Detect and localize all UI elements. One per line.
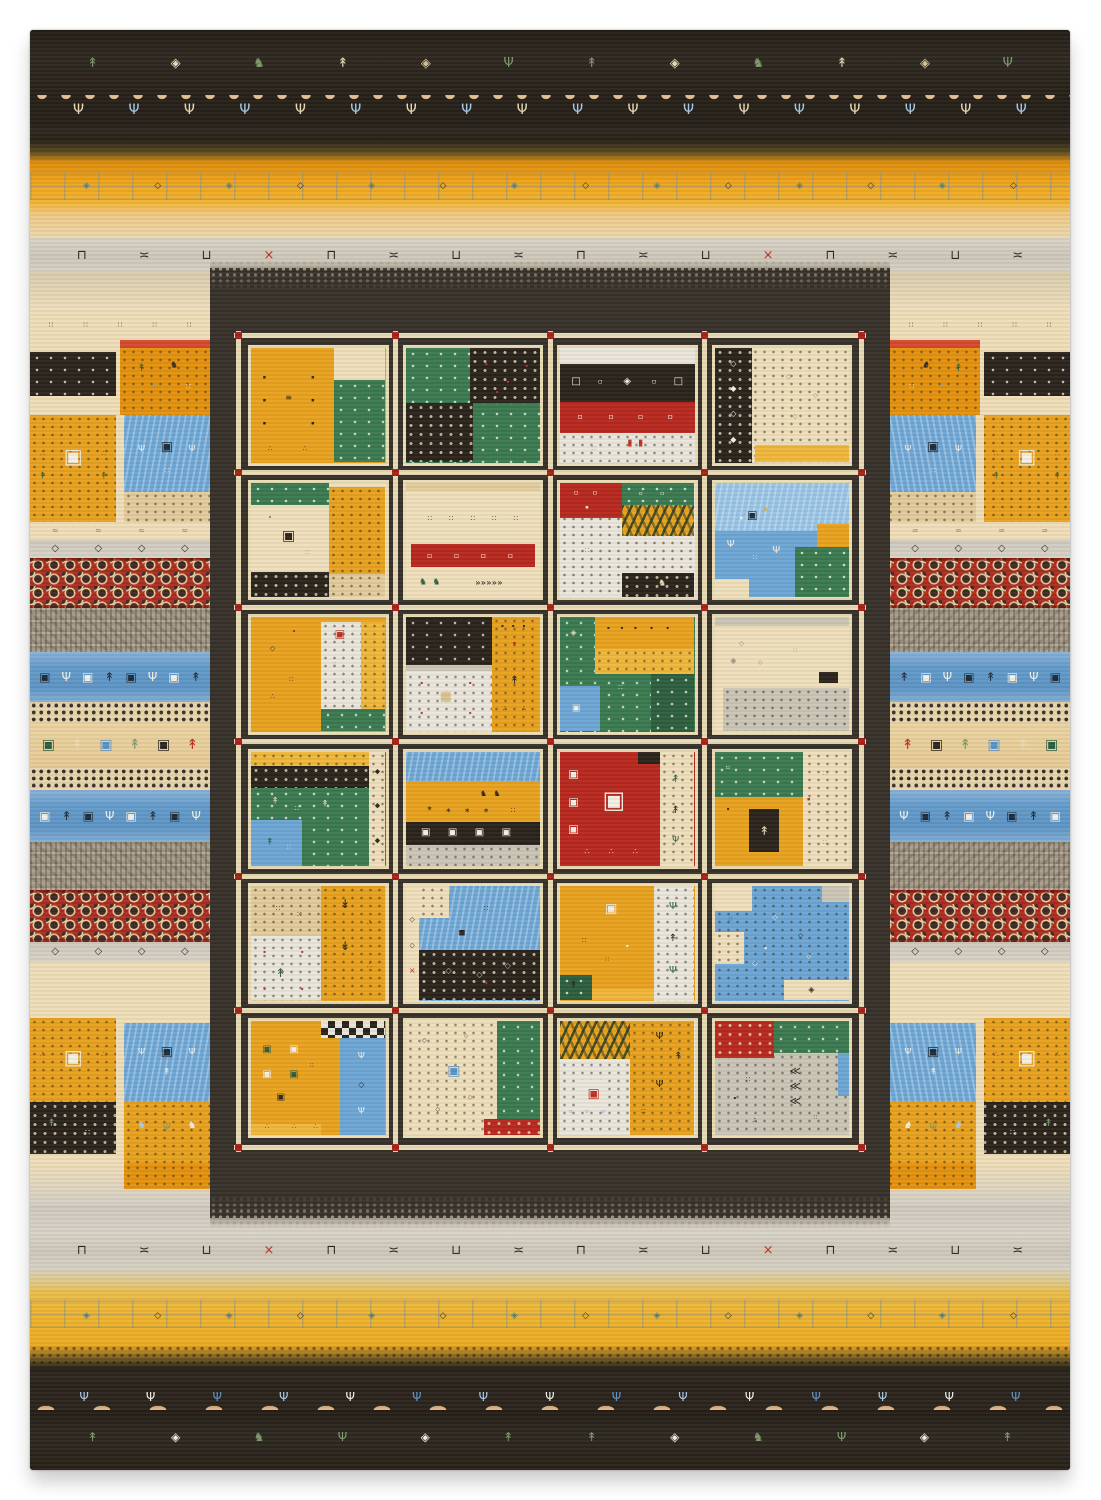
patch-yellow-blue-motif-glyph: Ψ <box>138 446 145 455</box>
grid-cell-r1c1-motif-glyph: ▪ <box>263 375 266 380</box>
patchwork-grid: ▪▪▪▪▪▪≡∴∴▪▪▪▪□▫◈▫□▫▫▫▫▮▮∷◇◆◇◆◇◇◇▣∷▪∷∷∷∷∷… <box>248 345 852 1138</box>
lattice-knot-dot <box>858 873 865 880</box>
grid-cell-r3c1-motif-glyph: ∷ <box>289 676 293 683</box>
bottom-gray-motif-band-motif-glyph: ⊔ <box>202 1244 212 1257</box>
grid-cell-r6c2-patch <box>484 1119 540 1135</box>
grid-cell-r2c4-patch <box>715 579 750 597</box>
patch-yellow-blue-patch <box>890 492 976 522</box>
lattice-knot-dot <box>858 604 865 611</box>
grid-cell-r4c2-motif-glyph: ∗ <box>427 805 433 812</box>
grid-cell-r2c2-motif-glyph: ▫ <box>454 552 459 560</box>
grid-cell-r5c3-motif-glyph: ↟ <box>669 934 677 944</box>
top-outer-border-motif-glyph: ◈ <box>421 57 431 70</box>
patch-yellow-blue-lower: ▣∴∴▣ΨΨ↟ <box>890 1018 1070 1102</box>
photo-canvas: ↟◈♞↟◈Ψ↟◈♞↟◈ΨΨΨΨΨΨΨΨΨΨΨΨΨΨΨΨΨΨΨ◈◇◈◇◈◇◈◇◈◇… <box>0 0 1101 1500</box>
gray-motif-band-motif-glyph: ≍ <box>1012 249 1023 262</box>
bottom-outer-border-motif-glyph: ↟ <box>1002 1431 1012 1443</box>
diamond-row: ◇◇◇◇ <box>890 540 1070 558</box>
grid-cell-r2c3-motif-glyph: ▫ <box>639 491 643 497</box>
top-scale-band-motif-row: ΨΨΨΨΨΨΨΨΨΨΨΨΨΨΨΨΨΨ <box>51 99 1049 121</box>
grid-cell-r4c1-motif-glyph: ↟ <box>321 801 329 810</box>
grid-cell-r5c4-patch <box>822 886 849 902</box>
grid-cell-r4c2-motif-glyph: ∗ <box>483 808 489 815</box>
grid-cell-r3c2-motif-glyph: ▪ <box>523 624 526 628</box>
patch-yellow-blue-lower-motif-glyph: Ψ <box>188 1049 195 1058</box>
top-scale-band-motif-glyph: Ψ <box>1016 103 1027 117</box>
grid-cell-r6c1-patch <box>251 1124 321 1135</box>
grain-band <box>30 842 210 890</box>
blue-square-band-motif-glyph: Ψ <box>62 671 71 683</box>
grid-cell-r1c1: ▪▪▪▪▪▪≡∴∴ <box>248 345 389 466</box>
patch-yellow-blue-patch <box>124 492 210 522</box>
lattice-knot-dot <box>235 1007 242 1014</box>
bottom-gray-motif-band-motif-row: ⊓≍⊔×⊓≍⊔≍⊓≍⊔×⊓≍⊔≍ <box>51 1232 1049 1268</box>
lattice-knot-dot <box>235 604 242 611</box>
cream-gap-motif-glyph: ≈ <box>1041 527 1048 535</box>
blue-square-band-motif-glyph: Ψ <box>191 810 200 822</box>
diamond-row-motif-glyph: ◇ <box>998 947 1006 957</box>
grid-cell-r3c1-motif-glyph: ∷ <box>346 680 350 686</box>
grid-cell-r1c1-motif-glyph: ≡ <box>285 394 292 402</box>
grid-cell-r2c1-motif-glyph: ▪ <box>268 515 271 519</box>
patch-charcoal-yellow-motif-glyph: ♞ <box>954 1121 963 1131</box>
top-scale-band-motif-glyph: Ψ <box>350 103 361 117</box>
diamond-row-motif-glyph: ◇ <box>911 947 919 957</box>
blue-square-band-motif-glyph: ↟ <box>62 810 72 822</box>
patch-yellow-blue-lower-motif-glyph: ∴ <box>994 1051 999 1059</box>
grid-cell-r6c3-motif-glyph: ∴ <box>676 1108 681 1116</box>
top-outer-border: ↟◈♞↟◈Ψ↟◈♞↟◈Ψ <box>30 30 1070 95</box>
margin-fade-patch <box>124 1164 210 1189</box>
blue-square-band: ▣Ψ▣↟▣Ψ▣↟ <box>30 652 210 702</box>
grid-cell-r3c2-motif-glyph: ▪ <box>513 642 516 647</box>
diamond-row-motif-glyph: ◇ <box>911 544 919 554</box>
top-scale-band-motif-glyph: Ψ <box>461 103 472 117</box>
patch-stars-orange-motif-glyph: ∷ <box>909 383 914 391</box>
grid-cell-r6c1-motif-glyph: ∷ <box>310 1063 314 1069</box>
grid-cell-r6c1-patch <box>321 1021 386 1038</box>
patch-charcoal-yellow: ↟∷♞Ψ♞ <box>890 1102 1070 1164</box>
grid-cell-r6c1-motif-glyph: ▣ <box>289 1070 298 1080</box>
square-motif-row-motif-row: ▣↟▣↟▣↟ <box>894 722 1067 768</box>
grid-cell-r5c1-motif-glyph: ↡ <box>340 898 350 910</box>
gabbeh-patchwork-rug: ↟◈♞↟◈Ψ↟◈♞↟◈ΨΨΨΨΨΨΨΨΨΨΨΨΨΨΨΨΨΨΨ◈◇◈◇◈◇◈◇◈◇… <box>30 30 1070 1470</box>
grid-cell-r6c4-motif-glyph: ∷ <box>746 1077 750 1084</box>
blue-square-band-motif-glyph: ↟ <box>104 671 114 683</box>
fade-cream-yellow <box>30 1268 1070 1290</box>
cream-dot-row-motif-row: ∷∷∷∷∷ <box>34 310 207 340</box>
grid-cell-r3c2-motif-glyph: ■ <box>440 691 452 704</box>
blue-square-band-motif-glyph: ▣ <box>82 671 93 683</box>
grid-cell-r5c3: ▣∷▪∷↟Ψ↟Ψ <box>557 883 698 1004</box>
grid-cell-r1c3-motif-glyph: ▫ <box>638 413 643 421</box>
lattice-knot-dot <box>701 873 708 880</box>
flower-band-motif-glyph: Ψ <box>79 1391 88 1403</box>
lattice-knot-dot <box>858 738 865 745</box>
yellow-garden-band-motif-glyph: ◈ <box>511 1312 518 1321</box>
grid-cell-r5c4: ◇◇▪◇◇◈∷ <box>712 883 853 1004</box>
grid-cell-r4c2-patch <box>406 752 541 782</box>
bottom-gray-motif-band-motif-glyph: ≍ <box>513 1244 524 1257</box>
grid-cell-r4c4-motif-glyph: ∷ <box>825 811 829 818</box>
patch-yellow-blue-lower-patch <box>890 1023 976 1102</box>
yellow-garden-band-motif-glyph: ◈ <box>653 1312 660 1321</box>
grid-cell-r2c3-motif-glyph: ▪ <box>585 505 588 510</box>
grid-cell-r5c1-motif-glyph: ∴ <box>367 919 372 927</box>
diamond-row-motif-row: ◇◇◇◇ <box>894 942 1067 962</box>
cream-dot-row-motif-glyph: ∷ <box>1012 322 1016 329</box>
grid-cell-r3c4-motif-glyph: ◈ <box>730 657 736 665</box>
grid-cell-r3c4-patch <box>723 688 849 732</box>
diamond-row-motif-glyph: ◇ <box>1041 544 1049 554</box>
grid-cell-r6c1-motif-glyph: Ψ <box>358 1108 365 1117</box>
grid-cell-r6c3: ▣▫▫▫Ψ↟Ψ∴∷ <box>557 1018 698 1139</box>
grid-cell-r5c2-motif-glyph: ◇ <box>410 917 415 924</box>
grid-cell-r4c2-motif-glyph: ▣ <box>475 828 484 838</box>
patch-stars-orange-patch <box>30 352 116 396</box>
grid-cell-r3c2-motif-glyph: ▪ <box>512 624 515 628</box>
cream-dot-row: ∷∷∷∷∷ <box>30 310 210 340</box>
grid-cell-r5c4-motif-glyph: ∷ <box>729 917 733 923</box>
square-motif-row-motif-glyph: ▣ <box>930 738 943 752</box>
grid-cell-r4c2-motif-glyph: ▣ <box>421 828 430 838</box>
cream-dot-row-motif-row: ∷∷∷∷∷ <box>894 310 1067 340</box>
orange-garden-band-motif-glyph: ◈ <box>511 182 518 191</box>
top-scale-band-motif-glyph: Ψ <box>628 103 639 117</box>
margin-fade <box>30 1164 210 1205</box>
patch-stars-orange-patch <box>120 348 210 416</box>
yellow-garden-band-motif-glyph: ◇ <box>725 1312 732 1321</box>
grid-cell-r1c3-motif-glyph: ▫ <box>608 413 613 421</box>
flower-band-motif-glyph: Ψ <box>412 1391 421 1403</box>
patch-yellow-blue-motif-glyph: ▣ <box>161 441 173 454</box>
grid-cell-r1c4: ◇◆◇◆◇◇◇ <box>712 345 853 466</box>
patch-stars-orange-patch <box>890 348 980 416</box>
grid-cell-r3c3-motif-glyph: ▪ <box>634 626 637 630</box>
grain-band <box>890 842 1070 890</box>
patch-yellow-blue-motif-glyph: Ψ <box>188 446 195 455</box>
grid-cell-r5c3-motif-glyph: Ψ <box>669 902 677 912</box>
grid-cell-r1c2-patch <box>406 403 473 463</box>
grid-cell-r1c1-motif-glyph: ∴ <box>268 445 272 452</box>
grid-cell-r3c4-patch <box>715 617 850 626</box>
grid-cell-r5c4-motif-glyph: ◇ <box>798 933 803 940</box>
grid-cell-r3c4-motif-glyph: ◇ <box>739 641 744 648</box>
flower-band-motif-glyph: Ψ <box>279 1391 288 1403</box>
grid-cell-r1c1-motif-glyph: ▪ <box>311 421 314 426</box>
yellow-garden-band: ◈◇◈◇◈◇◈◇◈◇◈◇◈◇ <box>30 1290 1070 1345</box>
bottom-gray-motif-band: ⊓≍⊔×⊓≍⊔≍⊓≍⊔×⊓≍⊔≍ <box>30 1232 1070 1268</box>
lattice-knot-dot <box>701 1007 708 1014</box>
grid-cell-r2c4-motif-glyph: ∷ <box>753 555 757 562</box>
bottom-outer-border-motif-glyph: ↟ <box>87 1431 97 1443</box>
cream-gap-motif-glyph: ≈ <box>95 527 102 535</box>
top-scale-band-motif-glyph: Ψ <box>239 103 250 117</box>
grid-cell-r6c4: ≪≪≪∷▪∴∷ <box>712 1018 853 1139</box>
grid-cell-r3c2-patch <box>406 665 492 671</box>
orange-garden-band-motif-glyph: ◇ <box>582 182 589 191</box>
cream-gap-motif-row: ≈≈≈≈ <box>894 522 1067 540</box>
grid-cell-r4c4-motif-glyph: ▪ <box>727 807 730 811</box>
top-scale-band-motif-glyph: Ψ <box>960 103 971 117</box>
margin-fade <box>890 1164 1070 1205</box>
grid-cell-r5c1-motif-glyph: ▪ <box>263 950 266 954</box>
patch-charcoal-yellow-motif-glyph: ♞ <box>904 1121 913 1131</box>
grid-cell-r4c2-motif-glyph: ▣ <box>502 828 511 838</box>
top-outer-border-motif-glyph: ↟ <box>337 57 348 70</box>
bottom-gray-motif-band-motif-glyph: ⊓ <box>825 1244 835 1257</box>
grid-cell-r4c4-motif-glyph: ∷ <box>823 771 827 778</box>
patch-yellow-blue-lower-motif-glyph: ↟ <box>163 1069 171 1078</box>
lattice-knot-dot <box>547 1144 554 1151</box>
cream-gap-motif-glyph: ≈ <box>955 527 962 535</box>
diamond-row-motif-glyph: ◇ <box>95 947 103 957</box>
grid-cell-r2c2-motif-glyph: ▫ <box>427 552 432 560</box>
square-motif-row-motif-glyph: ↟ <box>129 738 141 752</box>
grid-cell-r4c2-motif-glyph: ∗ <box>446 808 452 815</box>
grid-cell-r6c3-motif-glyph: Ψ <box>656 1080 664 1090</box>
cream-gap-motif-glyph: ≈ <box>998 527 1005 535</box>
grid-cell-r6c1-motif-glyph: ∴ <box>313 1123 317 1130</box>
grid-cell-r2c4: ▣▪▪ΨΨ∷ <box>712 480 853 601</box>
cream-plain <box>30 962 210 1018</box>
blue-square-band-motif-glyph: ▣ <box>1007 671 1018 683</box>
grid-cell-r6c2-motif-glyph: ◇ <box>464 1034 468 1039</box>
patch-charcoal-yellow-patch <box>30 1102 116 1154</box>
grid-cell-r4c3-motif-glyph: Ψ <box>672 836 679 845</box>
cream-dot-row-motif-glyph: ∷ <box>83 322 87 329</box>
cream-gap-motif-row: ≈≈≈≈ <box>34 522 207 540</box>
grid-cell-r6c1-motif-glyph: ▣ <box>262 1070 271 1080</box>
grid-cell-r6c4-motif-glyph: ∴ <box>752 1117 757 1125</box>
grid-cell-r2c3-patch <box>622 505 695 536</box>
grid-cell-r6c3-motif-glyph: ▫ <box>569 1110 572 1115</box>
patch-yellow-blue-lower-motif-glyph: Ψ <box>904 1049 911 1058</box>
blue-square-band-motif-glyph: ▣ <box>1050 810 1061 822</box>
grid-cell-r2c3-motif-glyph: ∷ <box>585 548 589 555</box>
lattice-knot-dot <box>547 604 554 611</box>
grid-cell-r2c4-patch <box>795 547 849 597</box>
lattice-knot-dot <box>858 469 865 476</box>
patch-yellow-blue-patch <box>30 415 116 522</box>
patch-yellow-blue-motif-glyph: ↟ <box>100 473 108 482</box>
grid-cell-r1c2-motif-glyph: ▪ <box>485 362 488 366</box>
patch-charcoal-yellow-motif-glyph: ♞ <box>188 1121 197 1131</box>
grid-cell-r1c2: ▪▪▪▪ <box>403 345 544 466</box>
cream-dot-row-motif-glyph: ∷ <box>187 322 191 329</box>
grid-cell-r3c3-motif-glyph: ▪ <box>666 626 669 630</box>
blue-square-band: ▣Ψ▣↟▣Ψ▣↟ <box>890 652 1070 702</box>
orange-garden-band-motif-glyph: ◇ <box>297 182 304 191</box>
grid-cell-r1c2-patch <box>470 348 540 403</box>
cream-dot-row-motif-glyph: ∷ <box>978 322 982 329</box>
top-scale-band-motif-glyph: Ψ <box>572 103 583 117</box>
yellow-garden-band-motif-glyph: ◈ <box>83 1312 90 1321</box>
grid-cell-r2c4-motif-glyph: ▣ <box>747 509 757 520</box>
top-scale-band-motif-glyph: Ψ <box>794 103 805 117</box>
lattice-knot-dot <box>547 873 554 880</box>
grid-cell-r4c4-motif-glyph: ▫ <box>726 765 730 771</box>
bottom-gray-motif-band-motif-glyph: ⊓ <box>576 1244 586 1257</box>
top-outer-border-motif-glyph: ↟ <box>586 57 597 70</box>
diamond-row-motif-row: ◇◇◇◇ <box>894 540 1067 558</box>
honeycomb-band <box>890 890 1070 942</box>
grid-cell-r4c1-patch <box>251 820 302 866</box>
grid-cell-r3c2: ■▪▪▪▪▪▪▪▪↟∴∴ <box>403 614 544 735</box>
yellow-garden-band-motif-glyph: ◈ <box>226 1312 233 1321</box>
square-motif-row-motif-glyph: ▣ <box>157 738 170 752</box>
cream-gap-motif-glyph: ≈ <box>912 527 919 535</box>
flower-band-motif-glyph: Ψ <box>479 1391 488 1403</box>
grid-cell-r3c2-motif-glyph: ∴ <box>503 705 507 712</box>
grid-cell-r2c2-motif-glyph: ♞ <box>432 579 440 588</box>
grid-cell-r2c2-motif-glyph: ∷ <box>449 516 453 523</box>
blue-square-band-motif-glyph: ▣ <box>126 671 137 683</box>
top-charcoal <box>30 123 1070 140</box>
bottom-gray-motif-band-motif-glyph: ≍ <box>139 1244 150 1257</box>
patch-yellow-blue-lower-motif-glyph: ▣ <box>1017 1047 1036 1067</box>
grid-cell-r6c3-motif-glyph: ▫ <box>585 1110 588 1115</box>
grid-cell-r1c2-motif-glyph: ▪ <box>496 390 499 394</box>
grid-cell-r4c2: ▣▣▣▣♞♞∗∗∗∗∷ <box>403 749 544 870</box>
bottom-outer-border-motif-glyph: ◈ <box>920 1431 929 1443</box>
diamond-row-motif-glyph: ◇ <box>181 544 189 554</box>
patch-charcoal-yellow-motif-glyph: ♞ <box>137 1121 146 1131</box>
bottom-gray-motif-band-motif-glyph: ⊔ <box>451 1244 461 1257</box>
margin-fade-patch <box>890 1164 976 1189</box>
grid-cell-r1c4-motif-glyph: ◇ <box>793 414 798 420</box>
blue-square-band-motif-glyph: ↟ <box>148 810 158 822</box>
grid-cell-r3c1-patch <box>361 622 385 709</box>
diamond-row-motif-glyph: ◇ <box>1041 947 1049 957</box>
grid-cell-r4c1-motif-glyph: ◆ <box>375 769 380 776</box>
grid-cell-r3c2-motif-glyph: ▪ <box>469 711 472 715</box>
grid-cell-r1c3-motif-glyph: ▫ <box>652 379 657 386</box>
square-motif-row-motif-glyph: ↟ <box>186 738 198 752</box>
side-border-left: ∷∷∷∷∷↟♞∷∷▣∴∴↟↟▣ΨΨ∷≈≈≈≈◇◇◇◇▣Ψ▣↟▣Ψ▣↟▣↟▣↟▣↟… <box>30 310 210 1205</box>
orange-garden-band-motif-glyph: ◇ <box>725 182 732 191</box>
blue-square-band-motif-glyph: ▣ <box>168 671 179 683</box>
grid-cell-r6c3-motif-glyph: ∷ <box>641 1109 645 1116</box>
orange-garden-band-motif-glyph: ◇ <box>154 182 161 191</box>
grid-cell-r5c3-motif-glyph: ∷ <box>605 957 609 963</box>
blue-square-band-motif-row: ▣Ψ▣↟▣Ψ▣↟ <box>894 652 1067 702</box>
grid-cell-r5c4-patch <box>715 886 753 911</box>
grid-cell-r6c4-patch <box>774 1021 849 1053</box>
flower-band-motif-glyph: Ψ <box>878 1391 887 1403</box>
grid-cell-r4c1: ◆◆◆↟↟∷↟∷ <box>248 749 389 870</box>
flower-band-motif-glyph: Ψ <box>545 1391 554 1403</box>
flower-band-motif-glyph: Ψ <box>811 1391 820 1403</box>
bottom-outer-border-motif-glyph: Ψ <box>837 1431 846 1443</box>
diamond-row: ◇◇◇◇ <box>30 942 210 962</box>
grain-band <box>30 608 210 652</box>
lattice-knot-dot <box>392 873 399 880</box>
blue-square-band-motif-glyph: ▣ <box>39 671 50 683</box>
grid-cell-r2c3-motif-glyph: ▫ <box>574 489 579 496</box>
grid-cell-r3c2-motif-glyph: ▪ <box>420 681 423 685</box>
flower-band-motif-glyph: Ψ <box>678 1391 687 1403</box>
orange-garden-band: ◈◇◈◇◈◇◈◇◈◇◈◇◈◇ <box>30 162 1070 214</box>
grid-cell-r1c3-motif-glyph: □ <box>571 377 580 387</box>
grid-cell-r6c2-motif-glyph: ◇ <box>468 1095 473 1101</box>
flower-band-motif-glyph: Ψ <box>346 1391 355 1403</box>
dot-band <box>890 702 1070 722</box>
blue-square-band-motif-glyph: Ψ <box>986 810 995 822</box>
orange-garden-band-motif-glyph: ◈ <box>226 182 233 191</box>
grid-cell-r6c3-motif-glyph: Ψ <box>656 1032 664 1042</box>
square-motif-row-motif-glyph: ▣ <box>42 738 55 752</box>
top-scale-band-motif-glyph: Ψ <box>849 103 860 117</box>
yellow-garden-band-motif-row: ◈◇◈◇◈◇◈◇◈◇◈◇◈◇ <box>51 1304 1049 1328</box>
top-outer-border-motif-glyph: ↟ <box>837 57 848 70</box>
flower-band-motif-glyph: Ψ <box>212 1391 221 1403</box>
diamond-row-motif-glyph: ◇ <box>955 947 963 957</box>
grid-cell-r5c1-patch <box>321 886 386 1001</box>
grid-cell-r2c2: ∷∷∷∷∷▫▫▫▫♞♞»»»»» <box>403 480 544 601</box>
top-outer-border-motif-glyph: ♞ <box>253 57 265 70</box>
top-outer-border-motif-glyph: Ψ <box>503 57 513 70</box>
patch-yellow-blue-lower-motif-glyph: Ψ <box>138 1049 145 1058</box>
patch-yellow-blue: ▣∴∴↟↟▣ΨΨ∷ <box>30 415 210 522</box>
patch-charcoal-yellow-motif-glyph: ∷ <box>1010 1129 1015 1137</box>
blue-square-band-motif-glyph: ▣ <box>963 810 974 822</box>
diamond-row: ◇◇◇◇ <box>890 942 1070 962</box>
dot-band <box>30 702 210 722</box>
blue-square-band-motif-glyph: Ψ <box>899 810 908 822</box>
grid-cell-r4c3-patch <box>638 752 660 765</box>
diamond-row-motif-glyph: ◇ <box>95 544 103 554</box>
top-outer-border-motif-glyph: Ψ <box>1003 57 1013 70</box>
patch-yellow-blue-motif-glyph: ▣ <box>1017 446 1036 466</box>
square-motif-row-motif-glyph: ▣ <box>1045 738 1058 752</box>
grid-cell-r5c1-motif-glyph: ∴ <box>367 962 372 970</box>
grid-cell-r5c1-motif-glyph: ↟ <box>276 967 286 979</box>
top-scale-band-motif-glyph: Ψ <box>295 103 306 117</box>
grid-cell-r3c3-motif-glyph: ▪ <box>621 626 624 630</box>
grid-cell-r2c3-patch <box>622 483 695 506</box>
lattice-knot-dot <box>547 332 554 339</box>
grid-cell-r4c2-motif-glyph: ∷ <box>511 808 515 815</box>
blue-square-band-motif-glyph: Ψ <box>105 810 114 822</box>
grid-cell-r1c4-motif-glyph: ◇ <box>786 373 791 380</box>
square-motif-row: ▣↟▣↟▣↟ <box>890 722 1070 768</box>
bottom-gray-motif-band-motif-glyph: ≍ <box>1012 1244 1023 1257</box>
grid-cell-r5c4-motif-glyph: ◈ <box>808 986 814 994</box>
grid-cell-r6c3-patch <box>560 1021 630 1060</box>
grid-cell-r1c3: □▫◈▫□▫▫▫▫▮▮∷ <box>557 345 698 466</box>
grid-cell-r3c4: ◇◈◇∷ <box>712 614 853 735</box>
orange-garden-band-motif-glyph: ◈ <box>796 182 803 191</box>
blue-square-band-motif-glyph: ↟ <box>986 671 996 683</box>
honeycomb-band <box>30 558 210 608</box>
grid-cell-r1c4-motif-glyph: ◆ <box>730 385 736 393</box>
top-scale-band-motif-glyph: Ψ <box>73 103 84 117</box>
grid-cell-r1c3-motif-glyph: ◈ <box>623 377 631 387</box>
flower-band-motif-row: ΨΨΨΨΨΨΨΨΨΨΨΨΨΨΨ <box>51 1388 1049 1406</box>
patch-yellow-blue-motif-glyph: ∷ <box>931 467 935 474</box>
grid-cell-r3c2-motif-glyph: ↟ <box>510 674 519 685</box>
grid-cell-r6c4-motif-glyph: ≪ <box>789 1080 801 1091</box>
grid-cell-r2c2-motif-glyph: ▫ <box>481 552 486 560</box>
blue-square-band-motif-glyph: ▣ <box>39 810 50 822</box>
bottom-gray-motif-band-motif-glyph: ≍ <box>638 1244 649 1257</box>
square-motif-row-motif-glyph: ↟ <box>71 738 83 752</box>
patch-stars-orange-motif-glyph: ∷ <box>941 383 946 391</box>
grid-cell-r4c1-patch <box>251 766 369 788</box>
grid-cell-r1c4-motif-glyph: ◇ <box>730 410 736 418</box>
blue-square-band-motif-glyph: ▣ <box>169 810 180 822</box>
